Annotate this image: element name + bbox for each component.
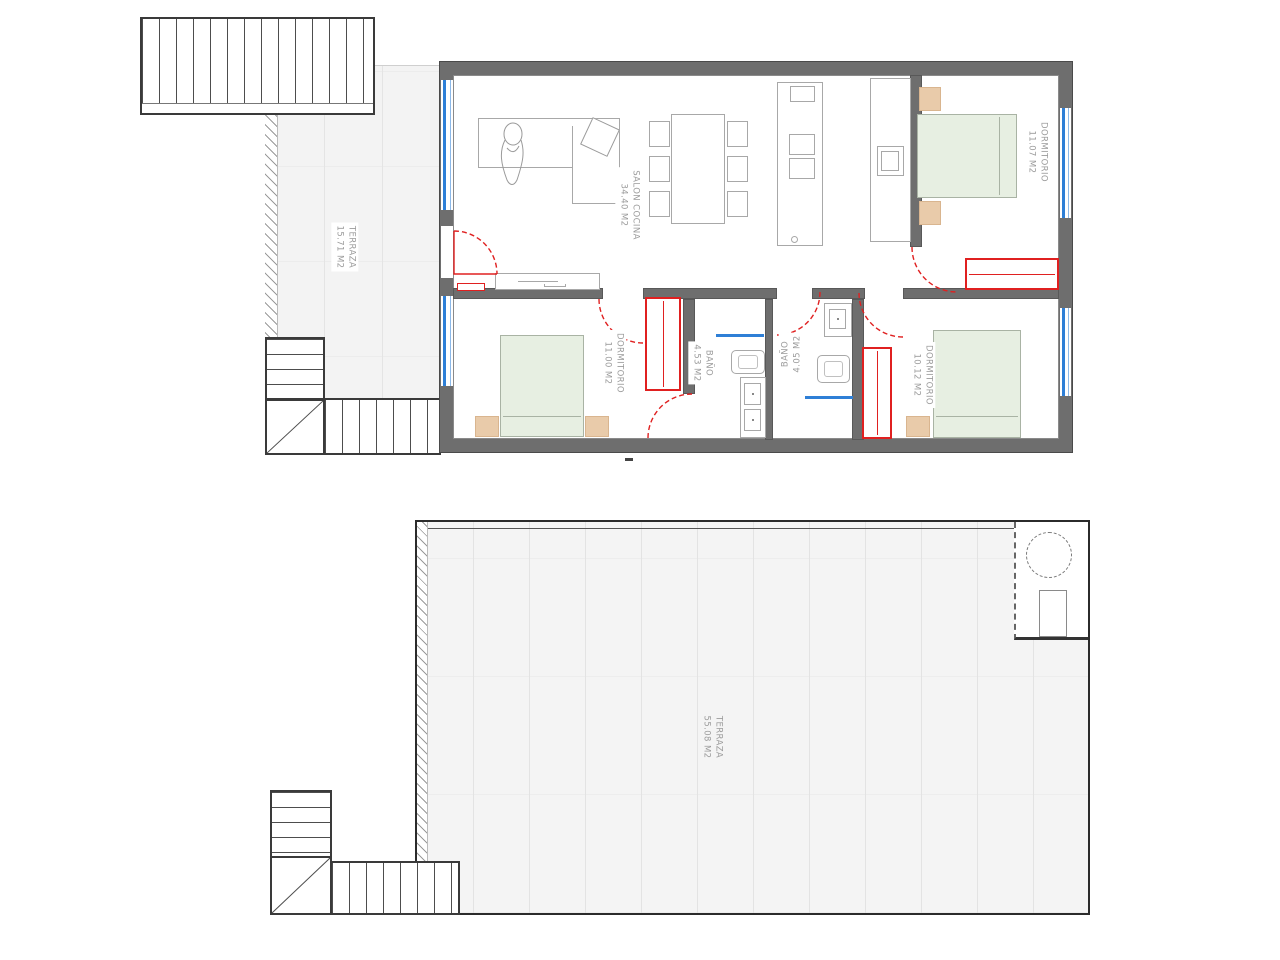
wardrobe [645, 297, 681, 391]
stair-diagonal [267, 401, 323, 453]
stairs-bottom-flight [323, 398, 441, 455]
roof-stairs-bottom-flight [330, 861, 460, 915]
cooktop-inner [881, 151, 899, 171]
upper-floor-plan: TERRAZA 15.71 M2 [0, 0, 1280, 480]
terrace-hatch-strip [265, 115, 278, 343]
toilet [731, 350, 765, 374]
nightstand [919, 87, 941, 111]
room-label-living-kitchen: SALON COCINA 34.40 M2 [616, 167, 643, 243]
roof-skylight [1026, 532, 1072, 578]
stairs-top [140, 17, 375, 115]
room-name: DORMITORIO [922, 345, 934, 405]
window-bedroom-bottom-right [1060, 308, 1071, 396]
window-bedroom-top-right [1060, 108, 1071, 218]
room-name: TERRAZA [345, 226, 357, 269]
vanity-sink [744, 383, 761, 405]
toilet [817, 355, 850, 383]
floor-plan-canvas: TERRAZA 15.71 M2 [0, 0, 1280, 960]
roof-stairs-landing [270, 856, 332, 915]
room-area: 34.40 M2 [617, 170, 629, 240]
person-figure [492, 118, 534, 190]
interior-wall [765, 299, 773, 440]
bed [917, 114, 1017, 198]
room-area: 15.71 M2 [333, 226, 345, 269]
dining-table [671, 114, 725, 224]
dimension-tick [625, 458, 633, 461]
nightstand [475, 416, 499, 437]
roof-parapet-line [417, 528, 1088, 529]
entry-cabinet [457, 283, 485, 291]
dining-chair [727, 191, 748, 217]
dining-chair [649, 121, 670, 147]
room-name: TERRAZA [712, 716, 724, 759]
room-area: 10.12 M2 [910, 345, 922, 405]
roof-stairs-left-flight [270, 790, 332, 858]
room-label-bath-left: BAÑO 4.53 M2 [689, 341, 716, 384]
sideboard-handle [544, 284, 566, 287]
room-area: 4.53 M2 [690, 344, 702, 381]
washbasin-bowl [829, 309, 846, 329]
door-arc-bedroom-top-right [912, 247, 957, 292]
roof-hatch-box [1039, 590, 1067, 637]
window-living [441, 80, 453, 210]
stairs-left-flight [265, 337, 325, 400]
room-label-bedroom-bottom-left: DORMITORIO 11.00 M2 [600, 330, 627, 396]
room-label-bedroom-bottom-right: DORMITORIO 10.12 M2 [909, 342, 936, 408]
window-bedroom-bottom-left [441, 296, 453, 386]
nightstand [585, 416, 609, 437]
room-name: BAÑO [780, 335, 792, 372]
room-area: 11.07 M2 [1025, 122, 1037, 182]
entry-opening [441, 226, 453, 278]
stair-stringer [142, 103, 373, 113]
roof-hatch-strip [417, 522, 428, 913]
island-sink [789, 158, 815, 179]
sideboard [495, 273, 600, 290]
room-name: DORMITORIO [1037, 122, 1049, 182]
island-hob [790, 86, 815, 102]
sideboard-handle [518, 281, 558, 282]
dining-chair [649, 191, 670, 217]
nightstand [919, 201, 941, 225]
wardrobe [965, 258, 1059, 290]
roof-terrace-floor [415, 520, 1090, 915]
room-label-terrace: TERRAZA 15.71 M2 [332, 223, 359, 272]
room-name: DORMITORIO [613, 333, 625, 393]
room-area: 4.05 M2 [792, 335, 804, 372]
room-label-bath-right: BAÑO 4.05 M2 [779, 332, 806, 375]
door-arc-bath-right [777, 292, 820, 335]
vanity-sink [744, 409, 761, 431]
stairs-landing [265, 399, 325, 455]
dining-chair [727, 121, 748, 147]
shower-screen [805, 396, 853, 399]
roof-terrace-plan: TERRAZA 55.08 M2 [0, 480, 1280, 960]
dining-chair [727, 156, 748, 182]
dining-chair [649, 156, 670, 182]
island-sink [789, 134, 815, 155]
shower-screen [716, 334, 764, 337]
bed [933, 330, 1021, 438]
room-label-bedroom-top-right: DORMITORIO 11.07 M2 [1024, 119, 1051, 185]
room-area: 55.08 M2 [700, 716, 712, 759]
room-name: BAÑO [702, 344, 714, 381]
island-tap [791, 236, 798, 243]
room-label-roof-terrace: TERRAZA 55.08 M2 [699, 713, 726, 762]
room-name: SALON COCINA [629, 170, 641, 240]
door-arc-entry [453, 229, 499, 276]
nightstand [906, 416, 930, 437]
room-area: 11.00 M2 [601, 333, 613, 393]
stair-diagonal [272, 858, 330, 913]
wardrobe [862, 347, 892, 439]
door-arc-bath-left [648, 394, 692, 438]
door-arc-bedroom-bottom-right [859, 293, 903, 337]
bed [500, 335, 584, 437]
